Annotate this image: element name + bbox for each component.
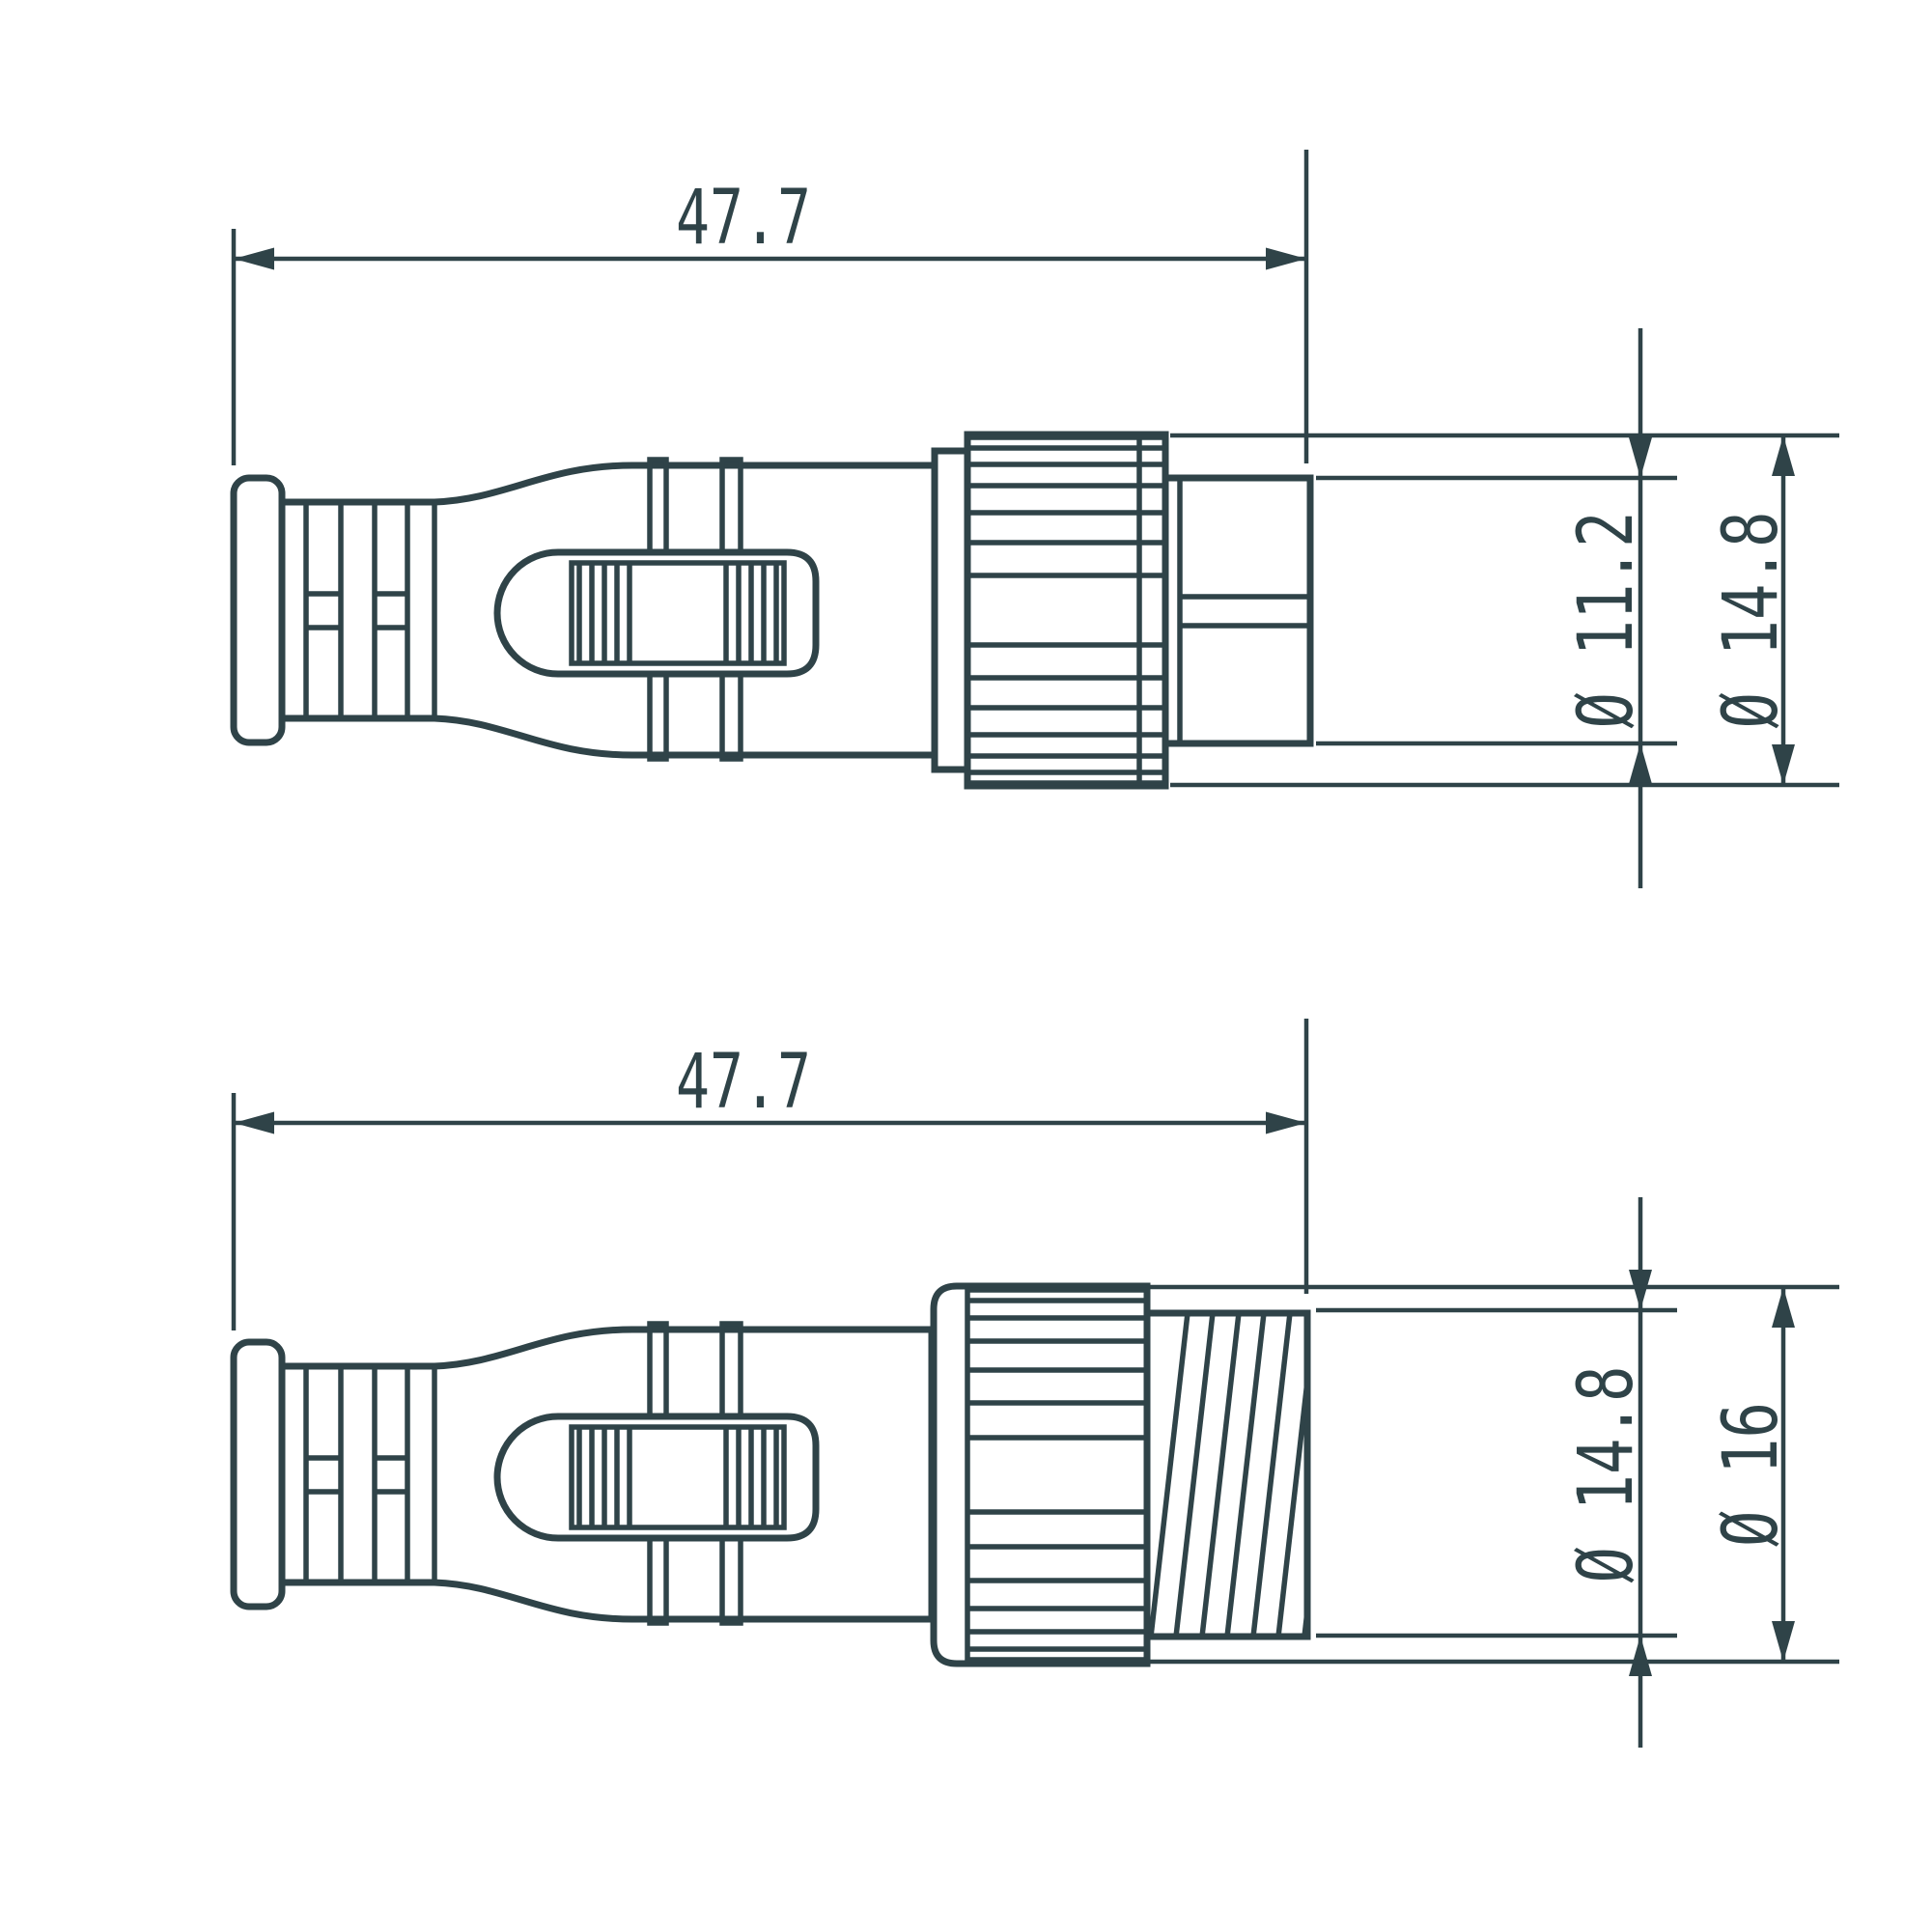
arrowhead (1629, 743, 1652, 784)
dim-label-dia-outer-top: Ø 14.8 (1708, 512, 1795, 729)
dim-dia-inner-top: Ø 11.2 (1316, 328, 1677, 888)
arrowhead (1629, 1270, 1652, 1310)
thread-hatch-lines (1151, 1313, 1341, 1637)
arrowhead (1772, 1621, 1795, 1662)
dim-label-length-bottom: 47.7 (676, 1039, 811, 1126)
arrowhead (234, 248, 274, 270)
drawing-page: 47.7 Ø 11.2 Ø 14.8 47.7 Ø 14.8 (0, 0, 1932, 1932)
dim-dia-outer-bottom: Ø 16 (1149, 1287, 1839, 1662)
socket-front-end (932, 1286, 1341, 1664)
plug-pin-barrel (1165, 478, 1310, 743)
dim-label-dia-inner-top: Ø 11.2 (1563, 512, 1650, 729)
technical-drawing-canvas: 47.7 Ø 11.2 Ø 14.8 47.7 Ø 14.8 (0, 0, 1932, 1932)
dim-length-top: 47.7 (234, 150, 1306, 465)
arrowhead (1629, 437, 1652, 478)
connector-left-body-bottom (234, 1324, 935, 1623)
dim-dia-outer-top: Ø 14.8 (1170, 435, 1839, 785)
dim-label-dia-outer-bottom: Ø 16 (1708, 1402, 1795, 1547)
knurl-lines (967, 1290, 1147, 1660)
collar (935, 451, 967, 770)
plug-front-end (935, 434, 1310, 786)
body-outline-bottom (434, 718, 935, 755)
knurl-lines (967, 437, 1165, 783)
cable-end-cap (234, 478, 282, 742)
body-outline-top (434, 465, 935, 502)
arrowhead (1772, 1287, 1795, 1328)
arrowhead (1629, 1636, 1652, 1676)
dim-label-dia-inner-bottom: Ø 14.8 (1563, 1366, 1650, 1583)
arrowhead (1266, 1112, 1306, 1134)
arrowhead (1772, 744, 1795, 785)
arrowhead (1772, 435, 1795, 476)
arrowhead (1266, 248, 1306, 270)
dim-dia-inner-bottom: Ø 14.8 (1316, 1197, 1677, 1748)
dim-label-length-top: 47.7 (676, 175, 811, 262)
arrowhead (234, 1112, 274, 1134)
connector-left-body (234, 460, 935, 759)
